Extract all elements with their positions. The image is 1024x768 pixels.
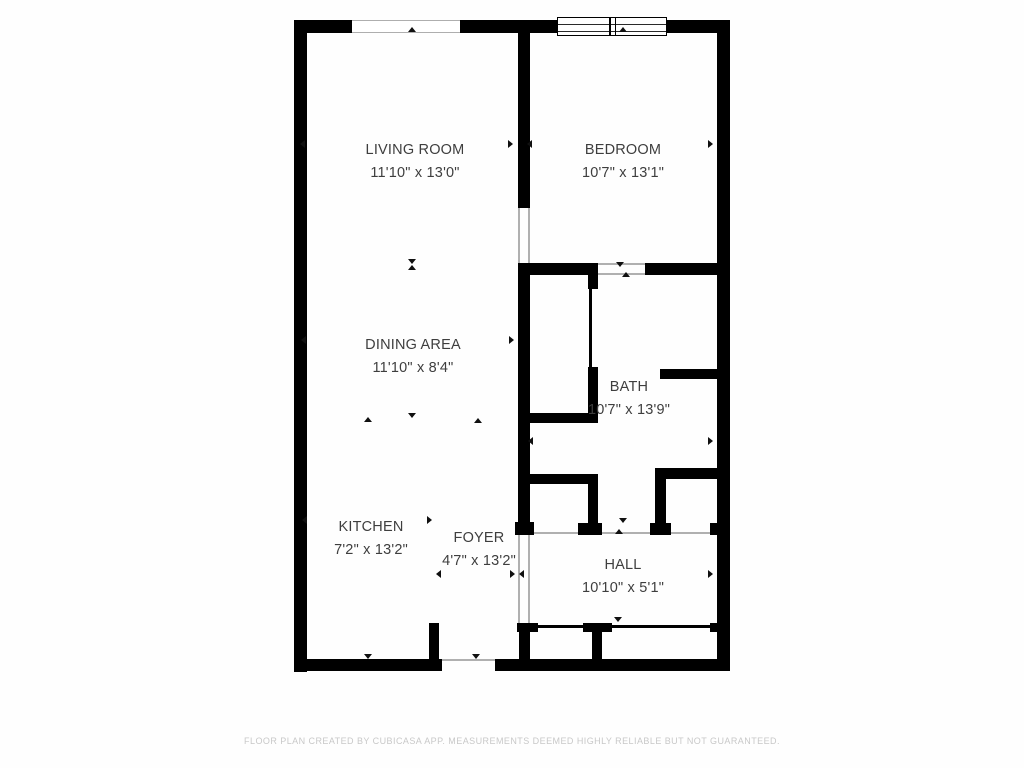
bedroom-south-wall-right-wall (645, 263, 730, 275)
bottom-wall-right-wall (495, 659, 730, 671)
room-dimensions: 4'7" x 13'2" (442, 550, 516, 573)
room-label-bedroom: BEDROOM10'7" x 13'1" (582, 139, 664, 185)
entry-door-edge (442, 659, 495, 661)
room-name: HALL (604, 557, 641, 573)
room-dimensions: 10'7" x 13'1" (582, 162, 664, 185)
center-wall-wall (518, 263, 530, 533)
dimension-marker (301, 336, 306, 344)
dimension-marker (408, 265, 416, 270)
room-label-dining-area: DINING AREA11'10" x 8'4" (365, 334, 461, 380)
window-opening (352, 20, 460, 33)
room-label-bath: BATH10'7" x 13'9" (588, 376, 670, 422)
room-label-kitchen: KITCHEN7'2" x 13'2" (334, 516, 408, 562)
bath-south-wall-right-wall (655, 468, 730, 479)
dimension-marker (300, 140, 305, 148)
top-wall-seg-1-wall (294, 20, 352, 33)
room-dimensions: 7'2" x 13'2" (334, 539, 408, 562)
bedroom-south-wall-left-wall (518, 263, 598, 275)
bath-doorway-stub-right-wall (655, 468, 666, 523)
bath-east-wall-wall (660, 369, 730, 379)
footer-disclaimer: FLOOR PLAN CREATED BY CUBICASA APP. MEAS… (244, 736, 780, 746)
hall-top-edge-line (530, 532, 717, 534)
window-symbol (557, 17, 667, 36)
bedroom-door-edge-right (528, 208, 530, 263)
bedroom-door-edge-left (518, 208, 520, 263)
hall-closet-door-2 (612, 625, 712, 628)
room-dimensions: 10'7" x 13'9" (588, 399, 670, 422)
bath-doorway-foot-right-wall (650, 523, 671, 535)
dimension-marker (472, 654, 480, 659)
hall-closet-divider-cap-wall (583, 623, 612, 632)
room-name: KITCHEN (338, 519, 403, 535)
closet-south-wall-wall (528, 413, 595, 423)
dimension-marker (408, 259, 416, 264)
closet-sliding-door (589, 289, 592, 367)
living-bedroom-wall-upper-wall (518, 33, 530, 208)
hall-closet-cap-left-wall (517, 623, 538, 632)
room-name: BATH (610, 379, 648, 395)
window-pane-line (558, 31, 666, 32)
dimension-marker (509, 336, 514, 344)
center-wall-foot-wall (515, 522, 534, 535)
dimension-marker (616, 262, 624, 267)
window-divider (609, 18, 611, 35)
room-label-foyer: FOYER4'7" x 13'2" (442, 527, 516, 573)
bath-doorway-stub-left-wall (588, 474, 598, 524)
dimension-marker (508, 140, 513, 148)
dimension-marker (427, 516, 432, 524)
window-pane-line (558, 24, 666, 25)
dimension-marker (619, 518, 627, 523)
dimension-marker (622, 272, 630, 277)
dimension-marker (708, 140, 713, 148)
dimension-marker (408, 27, 416, 32)
dimension-marker (364, 654, 372, 659)
window-divider (615, 18, 617, 35)
dimension-marker (436, 570, 441, 578)
room-name: DINING AREA (365, 337, 461, 353)
right-wall-foot-wall (710, 523, 720, 535)
kitchen-entry-stub-wall (429, 623, 439, 660)
dimension-marker (615, 529, 623, 534)
dimension-marker (619, 27, 627, 32)
top-wall-seg-2-wall (460, 20, 557, 33)
closet-east-wall-upper-wall (588, 275, 598, 289)
right-outer-wall-wall (717, 20, 730, 671)
left-outer-wall-wall (294, 20, 307, 672)
dimension-marker (408, 413, 416, 418)
dimension-marker (527, 140, 532, 148)
dimension-marker (519, 570, 524, 578)
room-name: FOYER (454, 530, 505, 546)
bath-south-wall-left-wall (528, 474, 597, 484)
room-dimensions: 11'10" x 8'4" (365, 357, 461, 380)
room-label-hall: HALL10'10" x 5'1" (582, 554, 664, 600)
dimension-marker (474, 418, 482, 423)
foyer-hall-opening-edge-left (518, 533, 520, 623)
bottom-wall-left-wall (294, 659, 442, 671)
room-dimensions: 11'10" x 13'0" (366, 162, 465, 185)
room-name: LIVING ROOM (366, 142, 465, 158)
dimension-marker (528, 437, 533, 445)
foyer-hall-opening-edge-right (528, 533, 530, 623)
room-label-living-room: LIVING ROOM11'10" x 13'0" (366, 139, 465, 185)
dimension-marker (302, 516, 307, 524)
hall-closet-door-1 (538, 625, 583, 628)
room-dimensions: 10'10" x 5'1" (582, 577, 664, 600)
dimension-marker (708, 570, 713, 578)
dimension-marker (614, 617, 622, 622)
bath-doorway-foot-left-wall (578, 523, 602, 535)
floor-plan: LIVING ROOM11'10" x 13'0"BEDROOM10'7" x … (0, 0, 1024, 768)
room-name: BEDROOM (585, 142, 661, 158)
dimension-marker (364, 417, 372, 422)
dimension-marker (708, 437, 713, 445)
